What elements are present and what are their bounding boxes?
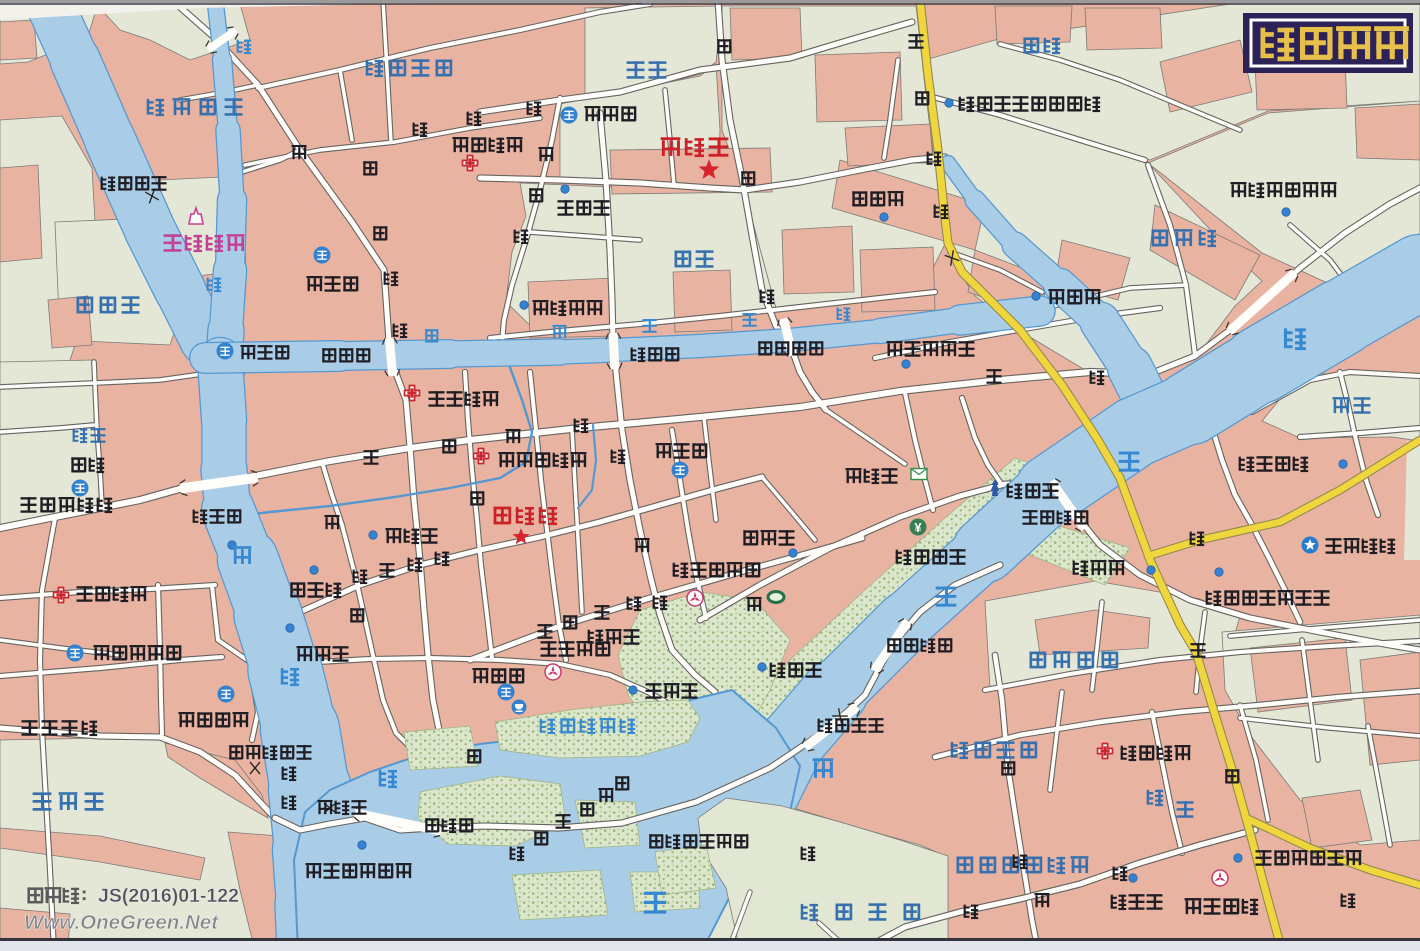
svg-text:Www.OneGreen.Net: Www.OneGreen.Net [24, 911, 219, 934]
svg-text:JS(2016)01-122: JS(2016)01-122 [98, 885, 239, 907]
